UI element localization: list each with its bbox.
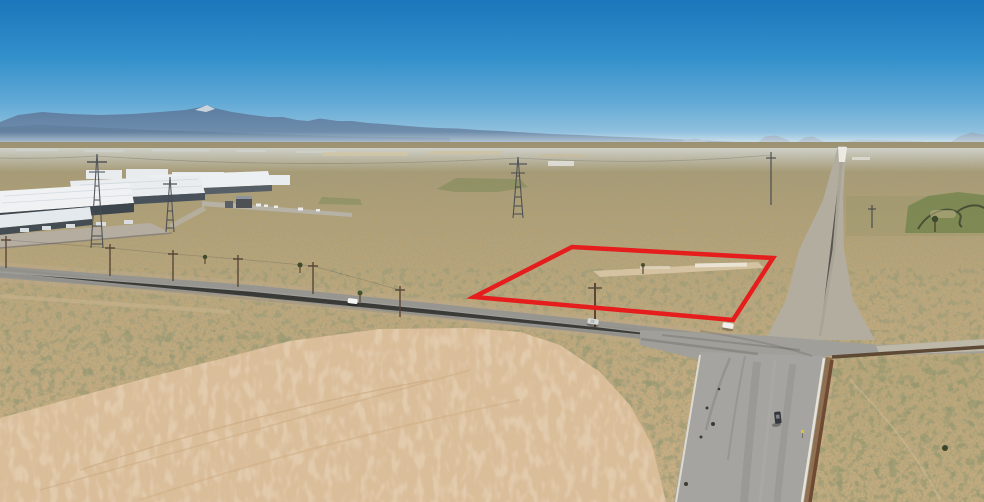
aerial-photo-canvas <box>0 0 984 502</box>
bush <box>942 445 948 451</box>
distant-structure <box>548 161 574 166</box>
dry-lake-streak <box>322 152 408 156</box>
joshua-tree <box>641 263 645 267</box>
aerial-photo <box>0 0 984 502</box>
walled-parcel <box>812 353 984 502</box>
